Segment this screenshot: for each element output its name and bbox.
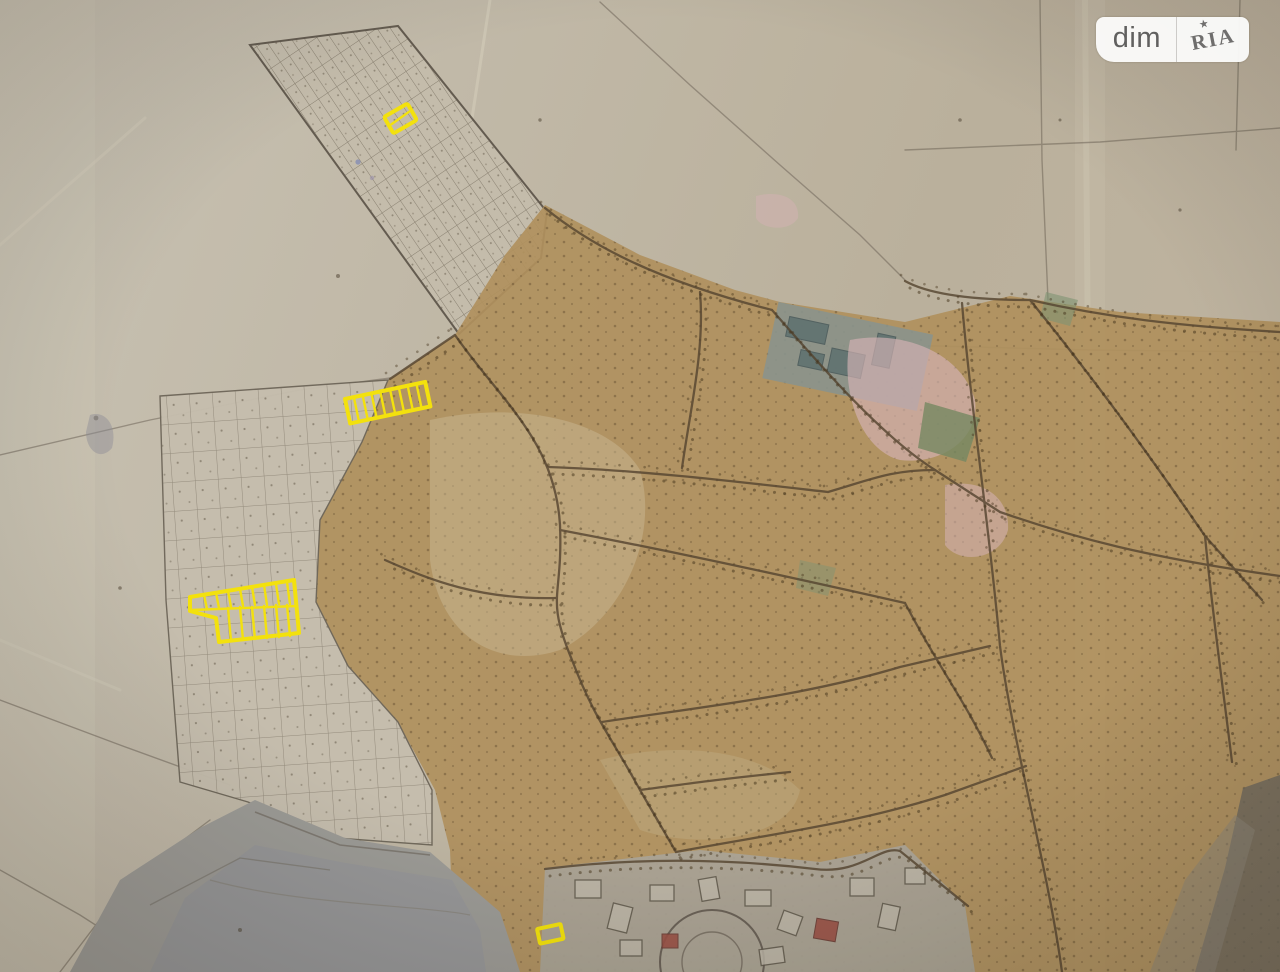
photo-vignette	[0, 0, 1280, 972]
watermark-dim-label: dim	[1113, 22, 1161, 55]
map-canvas-svg	[0, 0, 1280, 972]
watermark-badge: dim ★ RIA	[1096, 17, 1249, 62]
watermark-ria-cell: ★ RIA	[1176, 17, 1249, 62]
watermark-dim-cell: dim	[1096, 17, 1176, 62]
map-photo: dim ★ RIA	[0, 0, 1280, 972]
watermark-ria-label: RIA	[1189, 23, 1237, 55]
watermark-ria-stamp: ★ RIA	[1189, 23, 1237, 56]
star-icon: ★	[1197, 17, 1209, 31]
